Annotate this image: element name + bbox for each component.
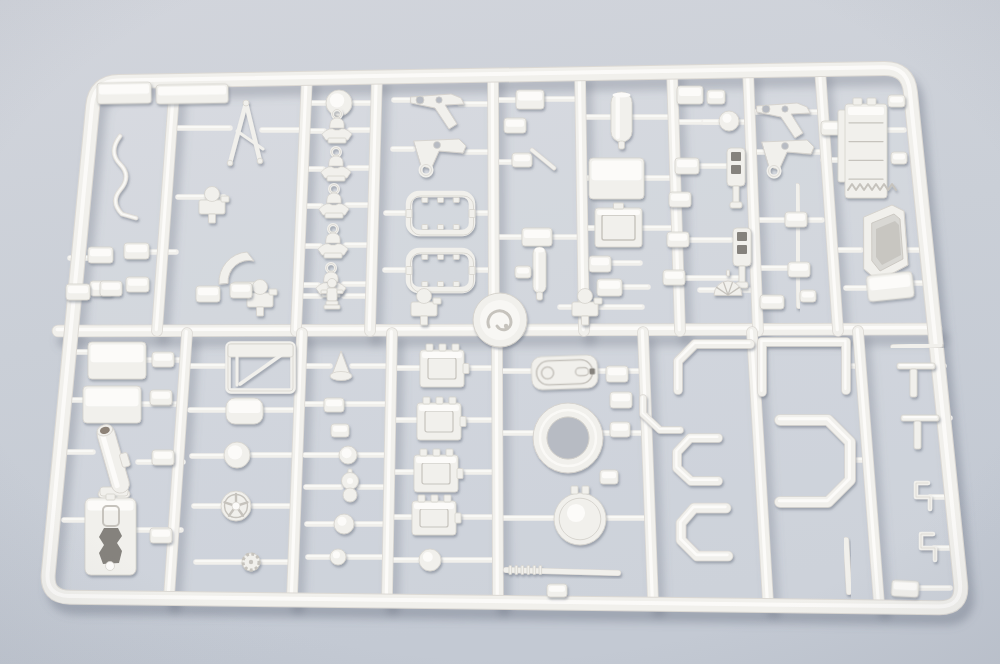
part-pad — [196, 286, 220, 302]
part-pad — [522, 228, 552, 246]
part-rod — [893, 345, 940, 347]
part-pad — [66, 284, 90, 300]
part-tray — [595, 203, 642, 247]
part-disc — [224, 442, 250, 468]
part-pad — [707, 90, 725, 104]
part-pad — [888, 95, 905, 107]
part-pad — [891, 580, 919, 597]
part-tower — [838, 98, 896, 198]
part-plate — [866, 271, 914, 302]
part-dome — [330, 549, 346, 565]
part-pad — [610, 422, 630, 437]
model-sprue-photo — [0, 0, 1000, 664]
part-pad — [150, 390, 172, 405]
part-pad — [597, 279, 622, 296]
part-pad — [669, 192, 691, 207]
part-pad — [610, 392, 632, 408]
part-dome — [419, 549, 441, 571]
part-pad — [891, 152, 907, 164]
part-pad — [516, 90, 544, 109]
part-pad — [150, 528, 172, 543]
part-pad — [788, 262, 810, 277]
part-rod — [797, 186, 799, 306]
part-plate — [88, 342, 146, 379]
part-block — [412, 495, 461, 535]
part-block — [417, 397, 466, 440]
part-pad — [677, 86, 703, 104]
part-pad — [589, 256, 611, 272]
part-pad — [800, 290, 816, 302]
part-plate — [83, 386, 141, 423]
part-plate — [589, 158, 644, 199]
part-gear — [242, 553, 260, 571]
part-pad — [156, 84, 228, 104]
part-pad — [124, 243, 149, 259]
part-ring — [533, 403, 603, 473]
part-pad — [230, 283, 252, 298]
part-pad — [667, 232, 689, 247]
part-pad — [88, 247, 113, 263]
part-dome — [719, 111, 739, 131]
part-pad — [100, 281, 122, 296]
part-tub — [531, 355, 598, 390]
part-pad — [600, 470, 618, 484]
part-dome — [334, 514, 354, 534]
part-pad — [152, 352, 174, 367]
photo-canvas — [0, 0, 1000, 664]
part-pad — [547, 584, 567, 597]
part-pad — [512, 153, 532, 167]
part-hub — [473, 293, 527, 347]
part-block — [414, 449, 463, 492]
part-block — [420, 344, 469, 387]
part-pad — [331, 424, 349, 437]
part-pad — [675, 158, 699, 174]
part-cutplate — [85, 494, 136, 575]
part-pad — [606, 366, 628, 382]
part-pad — [663, 270, 685, 285]
part-pad — [126, 277, 149, 292]
part-pad — [97, 82, 151, 104]
part-disc — [339, 446, 357, 464]
part-pad — [324, 398, 344, 412]
part-pad — [515, 266, 531, 278]
part-disc — [326, 90, 352, 116]
part-plate — [226, 398, 263, 424]
part-pad — [504, 118, 526, 133]
part-pad — [760, 295, 784, 309]
part-rod — [846, 540, 849, 592]
part-wheel — [221, 491, 251, 521]
part-pad — [152, 450, 174, 465]
part-pad — [785, 212, 807, 227]
